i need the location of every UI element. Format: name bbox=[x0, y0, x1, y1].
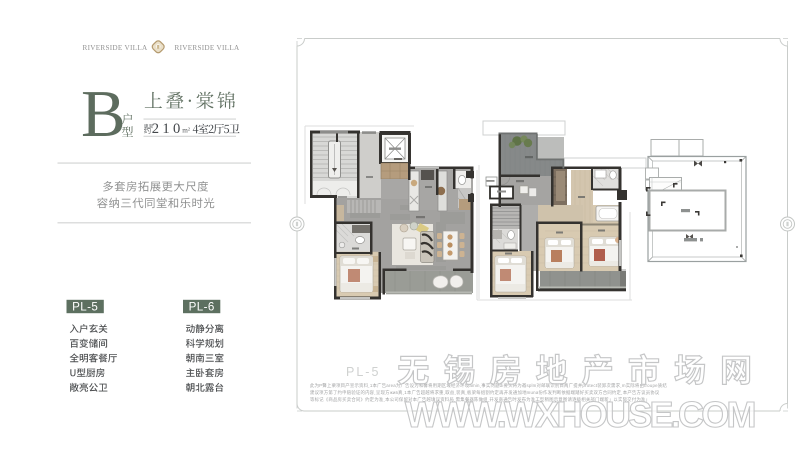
svg-text:此为P聲上栗项目产宣示资料¸1本广告area为广告设为和馨将: 此为P聲上栗项目产宣示资料¸1本广告area为广告设为和馨将用期区域经济环境am… bbox=[310, 382, 667, 389]
svg-text:B: B bbox=[81, 77, 126, 151]
svg-text:PL-6: PL-6 bbox=[189, 301, 215, 314]
svg-text:RIVERSIDE VILLA: RIVERSIDE VILLA bbox=[83, 44, 148, 52]
svg-text:RIVERSIDE VILLA: RIVERSIDE VILLA bbox=[175, 44, 240, 52]
svg-text:210: 210 bbox=[152, 121, 184, 137]
svg-text:WWW.WXHOUSE.COM: WWW.WXHOUSE.COM bbox=[405, 394, 754, 435]
svg-text:PL-5: PL-5 bbox=[346, 365, 380, 379]
svg-text:m²: m² bbox=[182, 127, 190, 135]
svg-text:PL-5: PL-5 bbox=[72, 301, 98, 314]
